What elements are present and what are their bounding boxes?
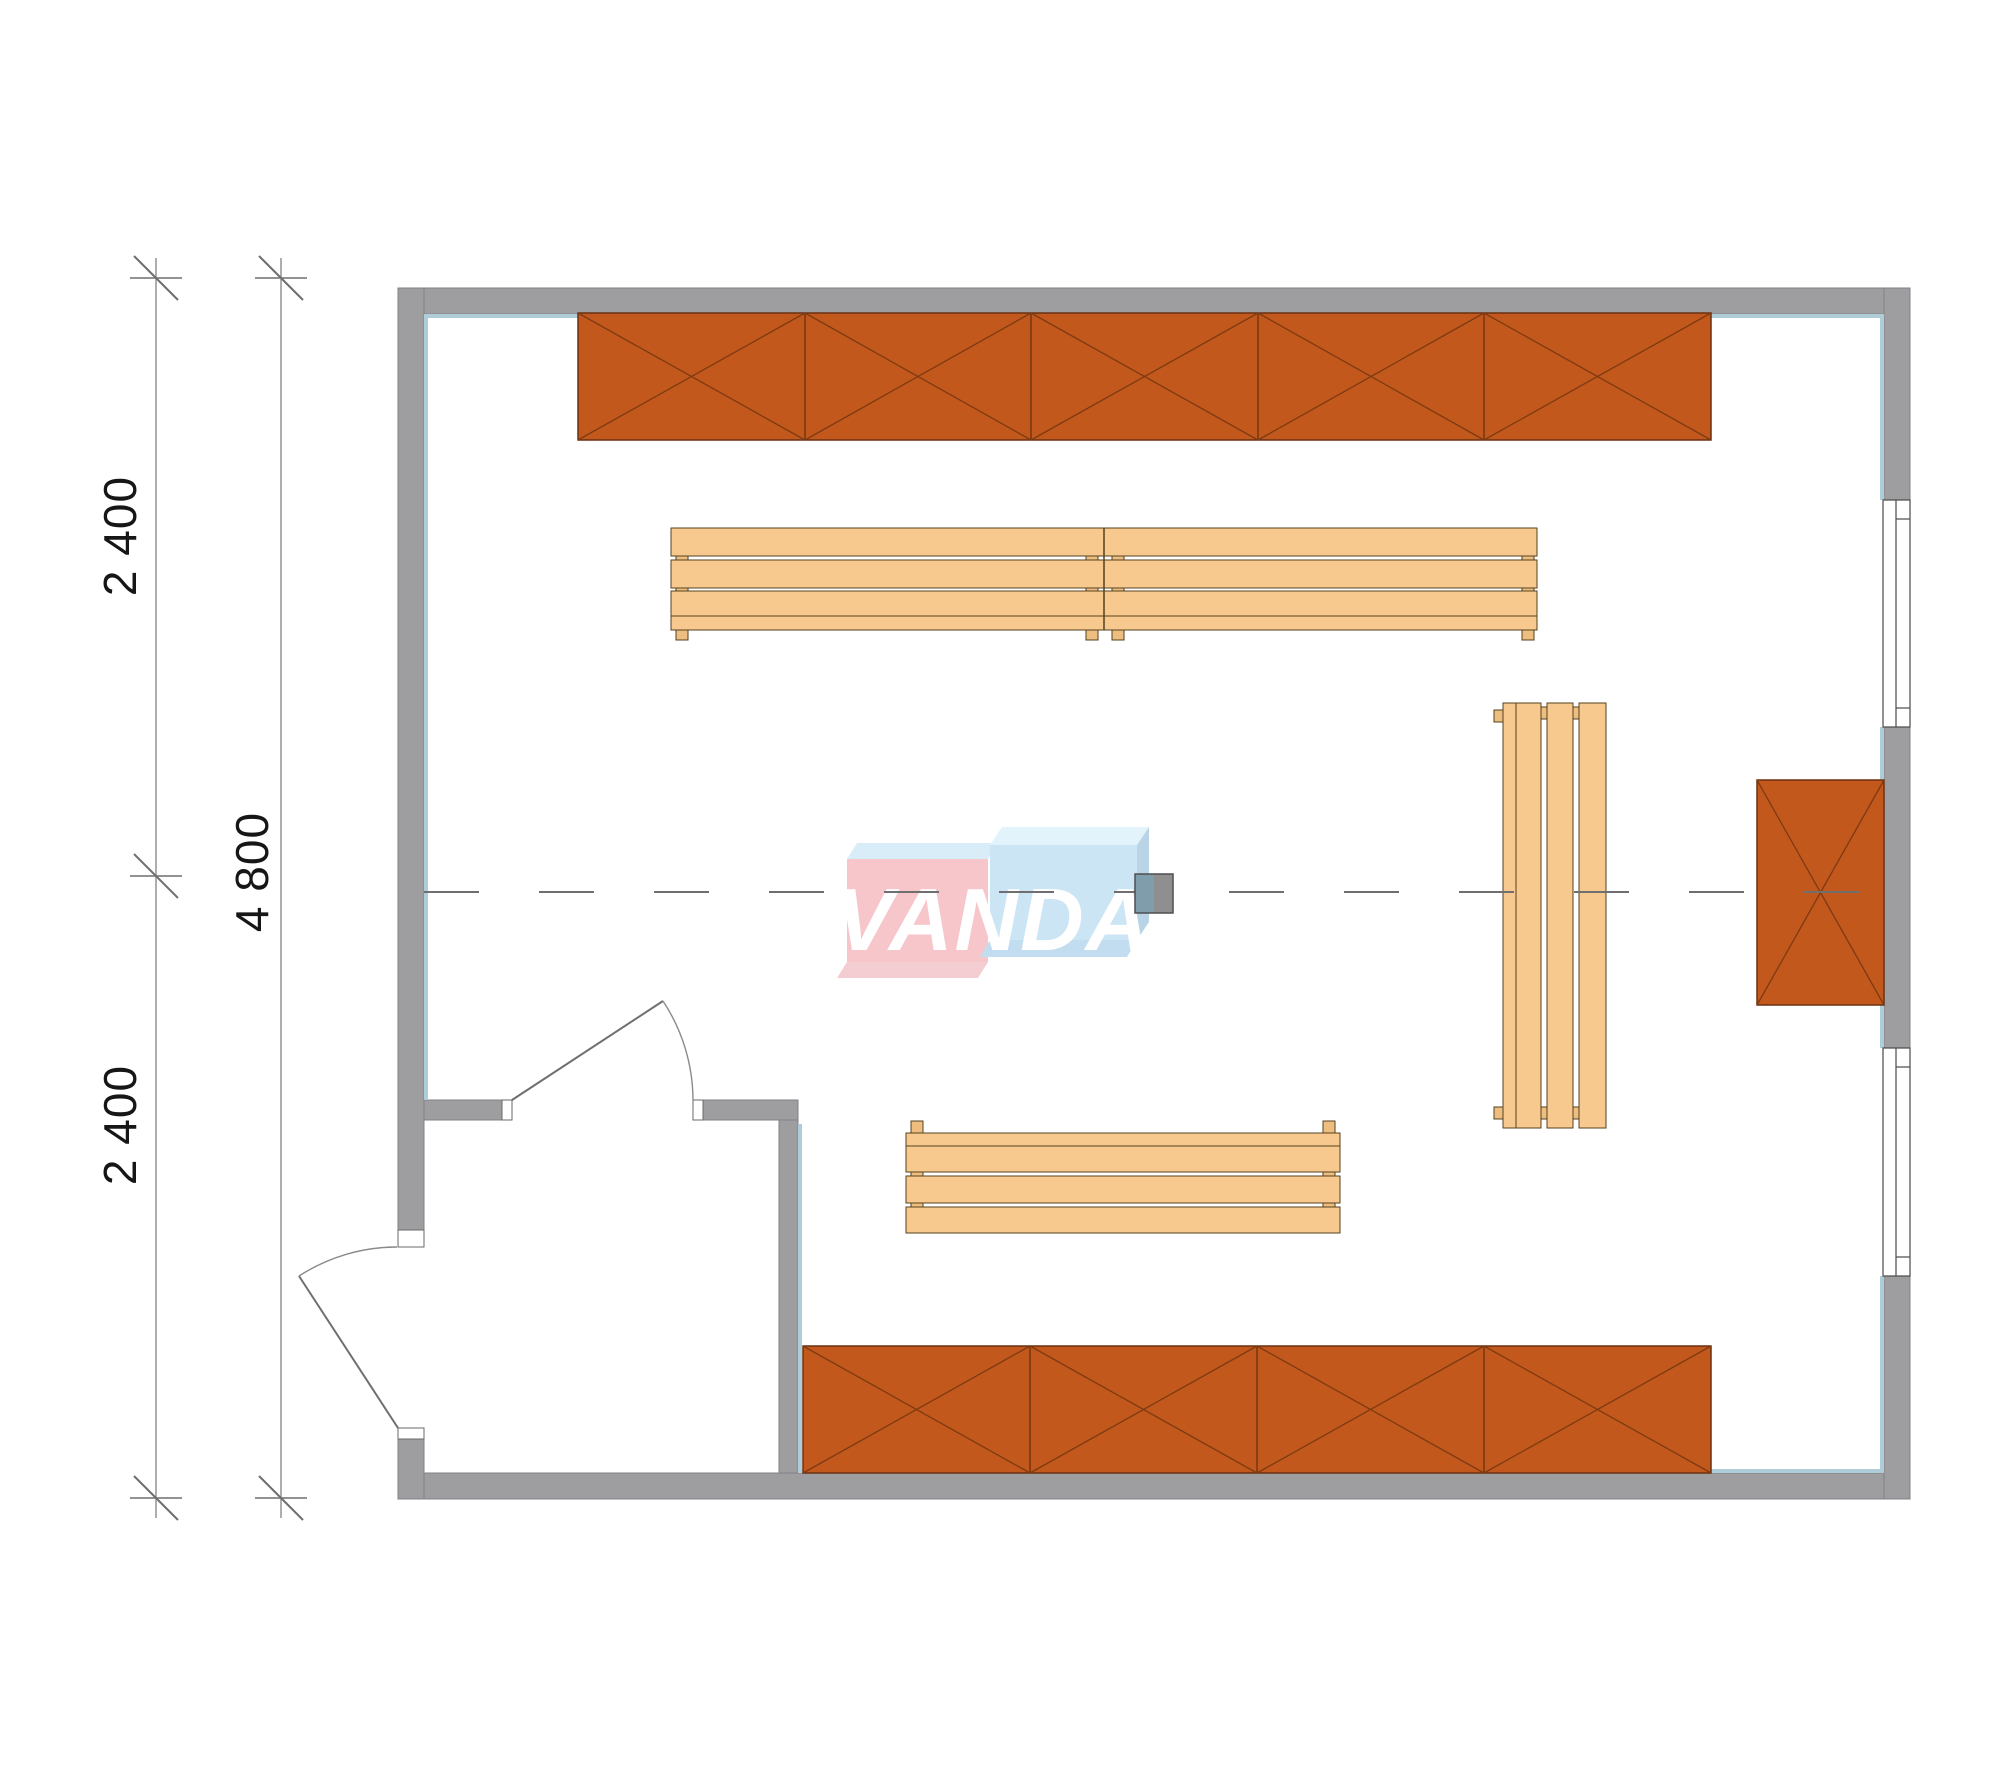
wall-left-upper xyxy=(398,288,424,1230)
bench-vertical-right xyxy=(1494,703,1606,1128)
stove-left-half xyxy=(1135,874,1154,913)
wall-right-lower xyxy=(1884,1276,1910,1499)
stove-right-half xyxy=(1154,874,1173,913)
bench-slat xyxy=(906,1207,1340,1233)
wall-top xyxy=(398,288,1910,314)
interior-door xyxy=(512,1001,693,1100)
partition-wall-right xyxy=(703,1100,798,1120)
wall-bottom xyxy=(398,1473,1910,1499)
bench-slat xyxy=(1579,703,1606,1128)
bench-rail xyxy=(906,1133,1340,1146)
doors xyxy=(299,1001,693,1428)
dimension-label-total: 4 800 xyxy=(226,812,278,932)
bench-slats xyxy=(1503,703,1606,1128)
door-swing-arc xyxy=(663,1001,693,1100)
door-leaf xyxy=(512,1001,663,1100)
interior-door-jamb-left xyxy=(502,1100,512,1120)
stove-unit xyxy=(1135,874,1173,913)
logo-blue-cube-top xyxy=(990,827,1149,845)
bench-slat xyxy=(1516,703,1541,1128)
cabinet-row-top xyxy=(578,313,1711,440)
bench-slat xyxy=(1547,703,1573,1128)
window-upper xyxy=(1883,500,1910,727)
vanda-watermark: VANDA xyxy=(835,827,1151,978)
bench-rail xyxy=(1503,703,1516,1128)
logo-wordmark: VANDA xyxy=(835,870,1151,969)
lining-right-lower xyxy=(1880,1276,1884,1469)
exterior-door xyxy=(299,1247,398,1428)
interior-door-jamb-right xyxy=(693,1100,703,1120)
window-lower xyxy=(1883,1048,1910,1276)
floor-plan-page: 2 400 2 400 4 800 xyxy=(0,0,2000,1786)
floor-plan-drawing: 2 400 2 400 4 800 xyxy=(0,0,2000,1786)
dimension-label-upper: 2 400 xyxy=(94,476,146,596)
logo-pink-cube-top xyxy=(847,843,998,859)
partition-wall-vertical xyxy=(779,1120,798,1473)
wall-left-lower xyxy=(398,1439,424,1499)
partition-wall-left xyxy=(424,1100,502,1120)
lining-right-upper xyxy=(1880,314,1884,500)
bench-slats xyxy=(906,1133,1340,1233)
dimension-label-lower: 2 400 xyxy=(94,1065,146,1185)
cabinet-row-bottom xyxy=(803,1346,1711,1473)
door-leaf xyxy=(299,1276,398,1428)
bench-upper xyxy=(671,528,1537,640)
exterior-door-jamb-bottom xyxy=(398,1428,424,1439)
bench-slat xyxy=(906,1176,1340,1203)
door-swing-arc xyxy=(299,1247,397,1276)
wall-right-upper xyxy=(1884,288,1910,500)
wall-right-middle-pier xyxy=(1884,727,1910,1048)
door-jambs xyxy=(398,1100,703,1439)
bench-slat xyxy=(906,1146,1340,1172)
dimension-assembly: 2 400 2 400 4 800 xyxy=(94,256,307,1520)
lining-partition xyxy=(798,1124,802,1469)
lining-left xyxy=(424,314,428,1100)
bench-lower xyxy=(906,1121,1340,1233)
exterior-door-jamb-top xyxy=(398,1230,424,1247)
